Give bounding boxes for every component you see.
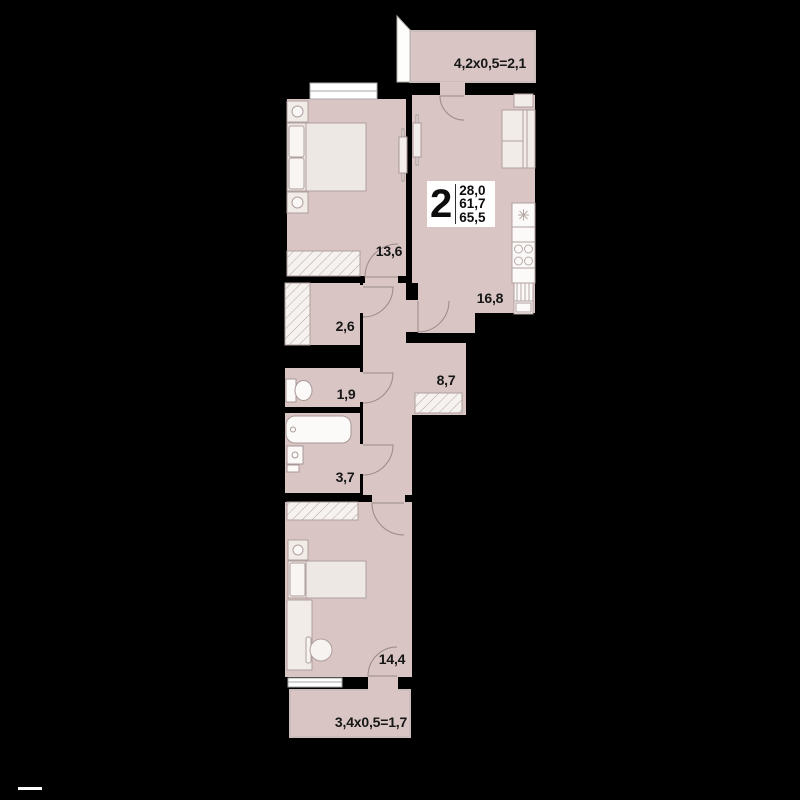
chair-seat [310,639,332,661]
area-label-closet: 2,6 [336,318,355,334]
pillow [290,563,305,596]
opening-bedroom-2 [372,495,405,503]
usable-area: 61,7 [459,197,485,211]
door-panel-stem [416,115,418,123]
closet-shelving [285,283,310,345]
pillow [289,126,304,157]
unit-areas: 28,0 61,7 65,5 [455,184,485,225]
area-label-bathroom: 3,7 [336,469,355,485]
washbasin-tap [292,452,298,458]
opening-closet [360,285,364,313]
counter [512,268,535,283]
floor-plan: 13,6 16,8 2,6 1,9 8,7 3,7 14,4 4,2x0,5=2… [0,0,800,800]
opening-balcony-top [440,82,465,96]
area-label-kitchen-living: 16,8 [477,290,503,306]
area-label-bedroom-2: 14,4 [379,651,405,667]
area-label-corridor: 8,7 [437,372,456,388]
watermark-dash [18,787,42,790]
washbasin-pedestal [287,465,299,472]
opening-bathroom [360,444,364,474]
fridge-cabinet [502,110,535,168]
pillow [289,158,304,189]
opening-kitchen [406,300,418,332]
room-count: 2 [430,183,452,225]
toilet-bowl [295,381,312,401]
upper-cabinet [514,94,533,107]
wardrobe [287,502,358,520]
balcony-top-glazing [397,16,410,82]
area-label-wc: 1,9 [337,386,356,402]
lamp [293,545,303,555]
door-panel-stem [402,129,404,137]
lamp [292,106,303,117]
dishwasher [514,283,533,301]
lamp [292,197,303,208]
wardrobe [287,251,360,276]
balcony-bottom-label: 3,4x0,5=1,7 [335,714,407,730]
opening-wc [360,372,364,402]
counter-end-inner [516,303,531,312]
sink-symbol [518,210,529,221]
bathtub-drain [291,427,296,432]
door-panel-stem [402,173,404,181]
counter [512,227,535,242]
floor-plan-drawing [0,0,800,800]
unit-info-badge: 2 28,0 61,7 65,5 [427,181,495,227]
door-panel-stem [416,157,418,165]
living-area: 28,0 [459,184,485,198]
total-area: 65,5 [459,211,485,225]
corridor-wardrobe [415,393,462,413]
door-panel [413,123,421,157]
balcony-top-label: 4,2x0,5=2,1 [454,55,526,71]
door-panel [399,137,407,173]
opening-balcony-bottom [368,677,398,691]
area-label-bedroom: 13,6 [376,243,402,259]
